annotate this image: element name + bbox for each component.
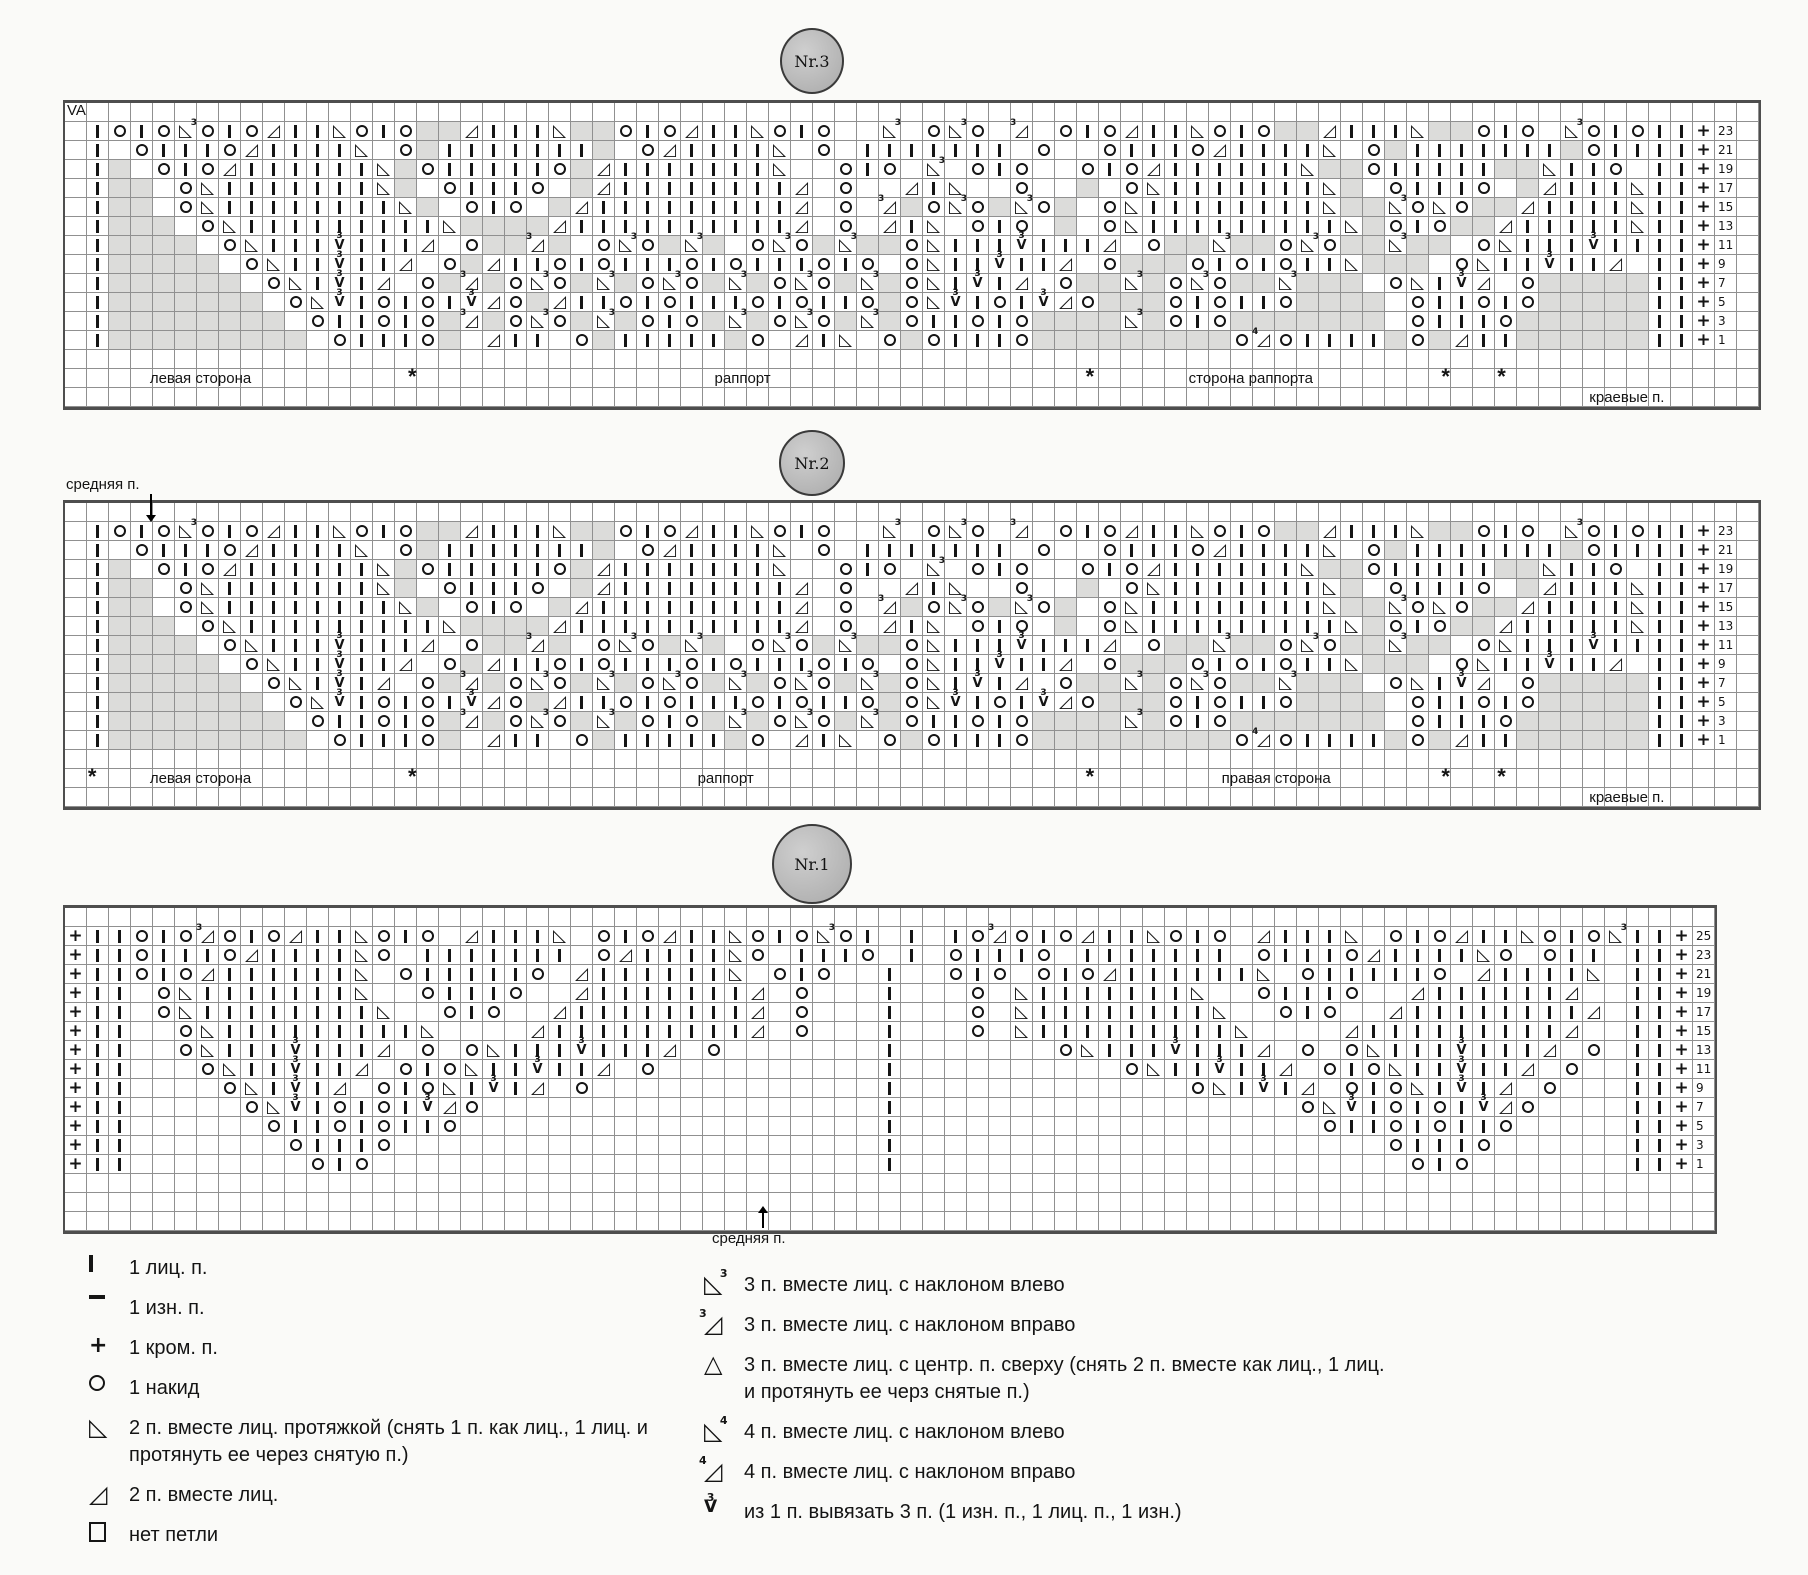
stitch-cell — [109, 141, 131, 160]
stitch-cell — [87, 731, 109, 750]
stitch-cell — [1363, 312, 1385, 331]
yarn-over-icon — [1390, 677, 1402, 689]
stitch-cell — [1165, 1060, 1187, 1079]
stitch-cell — [703, 1003, 725, 1022]
stitch-cell: ◺ — [1341, 255, 1363, 274]
stitch-cell — [87, 179, 109, 198]
stitch-cell — [1539, 1003, 1561, 1022]
stitch-cell — [901, 331, 923, 350]
yarn-over-icon — [378, 296, 390, 308]
stitch-cell — [153, 636, 175, 655]
stitch-cell — [967, 1003, 989, 1022]
stitch-cell: ◺3 — [923, 160, 945, 179]
stitch-cell — [417, 179, 439, 198]
stitch-cell — [1517, 674, 1539, 693]
stitch-cell: ◿ — [1561, 984, 1583, 1003]
grid-cell — [769, 503, 791, 522]
grid-cell — [1077, 103, 1099, 122]
grid-cell — [1187, 750, 1209, 769]
stitch-cell — [769, 946, 791, 965]
knit-stitch-icon — [1240, 220, 1243, 233]
grid-cell — [1253, 788, 1275, 807]
stitch-cell — [1495, 1060, 1517, 1079]
knit-stitch-icon — [162, 930, 165, 943]
grid-cell — [791, 388, 813, 407]
grid-cell — [527, 750, 549, 769]
stitch-cell — [879, 541, 901, 560]
knit-stitch-icon — [1372, 968, 1375, 981]
stitch-cell — [703, 312, 725, 331]
stitch-cell — [439, 927, 461, 946]
yarn-over-icon — [1478, 182, 1490, 194]
knit-stitch-icon — [96, 163, 99, 176]
knit-stitch-icon — [1680, 582, 1683, 595]
grid-cell — [285, 908, 307, 927]
grid-cell — [1561, 788, 1583, 807]
knit-stitch-icon — [338, 544, 341, 557]
stitch-cell — [1583, 160, 1605, 179]
stitch-cell: ◿ — [1363, 946, 1385, 965]
stitch-cell — [219, 984, 241, 1003]
stitch-cell: ◿ — [593, 1060, 615, 1079]
knit-stitch-icon — [1284, 930, 1287, 943]
stitch-cell — [1517, 984, 1539, 1003]
yarn-over-icon — [906, 277, 918, 289]
grid-cell — [461, 388, 483, 407]
grid-cell — [1033, 103, 1055, 122]
stitch-cell: ◺ — [197, 579, 219, 598]
stitch-cell — [1165, 160, 1187, 179]
stitch-cell — [1297, 331, 1319, 350]
knit-stitch-icon — [316, 144, 319, 157]
stitch-cell — [989, 1079, 1011, 1098]
stitch-cell: + — [1693, 541, 1715, 560]
grid-cell — [307, 908, 329, 927]
stitch-cell — [747, 236, 769, 255]
stitch-cell — [615, 1079, 637, 1098]
grid-cell — [1033, 908, 1055, 927]
knit-stitch-icon — [96, 1063, 99, 1076]
stitch-cell — [1077, 312, 1099, 331]
stitch-cell — [197, 541, 219, 560]
k2tog-icon: ◿ — [795, 180, 808, 197]
yarn-over-icon — [818, 677, 830, 689]
grid-cell — [241, 103, 263, 122]
grid-cell — [263, 388, 285, 407]
stitch-cell — [329, 927, 351, 946]
grid-cell — [681, 388, 703, 407]
knit-stitch-icon — [404, 296, 407, 309]
yarn-over-icon — [444, 182, 456, 194]
stitch-cell — [1517, 255, 1539, 274]
stitch-cell — [1253, 198, 1275, 217]
grid-cell — [725, 908, 747, 927]
stitch-cell — [1275, 522, 1297, 541]
knit-stitch-icon — [822, 334, 825, 347]
knit-stitch-icon — [470, 987, 473, 1000]
stitch-cell — [791, 236, 813, 255]
stitch-cell — [1055, 312, 1077, 331]
stitch-cell: + — [1693, 598, 1715, 617]
grid-cell — [373, 908, 395, 927]
stitch-cell: ◺ — [219, 617, 241, 636]
grid-cell — [219, 350, 241, 369]
stitch-cell — [813, 560, 835, 579]
stitch-cell — [1121, 1003, 1143, 1022]
stitch-cell — [505, 674, 527, 693]
knit-stitch-icon — [580, 544, 583, 557]
stitch-cell — [703, 1041, 725, 1060]
yarn-over-icon — [620, 696, 632, 708]
stitch-cell — [769, 312, 791, 331]
stitch-cell — [1451, 236, 1473, 255]
stitch-cell — [197, 731, 219, 750]
yarn-over-icon — [642, 277, 654, 289]
yarn-over-icon — [1368, 544, 1380, 556]
ssk-icon: ◺ — [1499, 637, 1512, 654]
stitch-cell: + — [1671, 1022, 1693, 1041]
stitch-cell: ◺3 — [813, 927, 835, 946]
yarn-over-icon — [796, 696, 808, 708]
yarn-over-icon — [510, 601, 522, 613]
stitch-cell — [703, 331, 725, 350]
grid-cell — [571, 503, 593, 522]
stitch-cell — [153, 1060, 175, 1079]
knit-stitch-icon — [1020, 258, 1023, 271]
grid-cell — [1671, 388, 1693, 407]
knit-stitch-icon — [514, 1082, 517, 1095]
grid-cell — [153, 908, 175, 927]
stitch-cell — [1143, 331, 1165, 350]
stitch-cell — [1451, 617, 1473, 636]
stitch-cell — [417, 655, 439, 674]
knit-stitch-icon — [1438, 144, 1441, 157]
stitch-cell — [263, 946, 285, 965]
knit-stitch-icon — [690, 620, 693, 633]
stitch-cell: + — [1693, 636, 1715, 655]
yarn-over-icon — [1082, 163, 1094, 175]
stitch-cell — [241, 293, 263, 312]
stitch-cell: ◿ — [1077, 927, 1099, 946]
knit-stitch-icon — [1306, 182, 1309, 195]
stitch-cell — [461, 179, 483, 198]
knit-stitch-icon — [954, 315, 957, 328]
stitch-cell — [1077, 331, 1099, 350]
knit-stitch-icon — [1482, 734, 1485, 747]
edge-stitch-icon: + — [1696, 599, 1710, 616]
yarn-over-icon — [422, 563, 434, 575]
yarn-over-icon — [1280, 258, 1292, 270]
k3tog-left-icon: ◺3 — [861, 675, 874, 692]
stitch-cell — [1671, 712, 1693, 731]
k2tog-icon: ◿ — [1323, 123, 1336, 140]
knit-stitch-icon — [998, 544, 1001, 557]
grid-cell — [1627, 103, 1649, 122]
stitch-cell: + — [1693, 179, 1715, 198]
stitch-cell — [1583, 522, 1605, 541]
knit-stitch-icon — [448, 296, 451, 309]
stitch-cell: ◿ — [1583, 1003, 1605, 1022]
stitch-cell — [197, 331, 219, 350]
k2tog-icon: ◿ — [421, 237, 434, 254]
grid-cell — [549, 503, 571, 522]
knit-stitch-icon — [1482, 544, 1485, 557]
grid-cell — [87, 788, 109, 807]
knit-stitch-icon — [1218, 949, 1221, 962]
stitch-cell — [1275, 598, 1297, 617]
yarn-over-icon — [1104, 601, 1116, 613]
knit-stitch-icon — [1482, 163, 1485, 176]
knit-stitch-icon — [1438, 696, 1441, 709]
stitch-cell — [1649, 579, 1671, 598]
stitch-cell: ◿ — [791, 179, 813, 198]
grid-cell — [813, 503, 835, 522]
stitch-cell: ◿ — [1055, 655, 1077, 674]
ssk-icon: ◺ — [1499, 237, 1512, 254]
k2tog-icon: ◿ — [597, 1061, 610, 1078]
edge-stitch-icon: + — [1674, 1023, 1688, 1040]
stitch-cell — [1583, 1041, 1605, 1060]
stitch-cell — [263, 293, 285, 312]
stitch-cell — [307, 331, 329, 350]
stitch-cell: ◺3 — [1209, 236, 1231, 255]
grid-cell — [527, 369, 549, 388]
ssk-icon: ◺ — [355, 947, 368, 964]
knit-stitch-icon — [1460, 949, 1463, 962]
stitch-cell — [439, 946, 461, 965]
grid-cell — [109, 788, 131, 807]
k3tog-left-icon: ◺3 — [1301, 237, 1314, 254]
stitch-cell — [263, 1060, 285, 1079]
row-number: 15 — [1693, 1022, 1715, 1041]
stitch-cell — [373, 693, 395, 712]
grid-cell — [967, 103, 989, 122]
yarn-over-icon — [1324, 239, 1336, 251]
stitch-cell — [153, 731, 175, 750]
grid-cell — [1341, 750, 1363, 769]
knit-stitch-icon — [1196, 696, 1199, 709]
stitch-cell — [1121, 965, 1143, 984]
stitch-cell: ◺ — [923, 655, 945, 674]
stitch-cell — [131, 522, 153, 541]
knit-stitch-icon — [1438, 563, 1441, 576]
stitch-cell — [637, 198, 659, 217]
stitch-cell — [1165, 141, 1187, 160]
stitch-cell — [593, 522, 615, 541]
grid-cell — [1715, 369, 1737, 388]
knit-stitch-icon — [426, 620, 429, 633]
grid-cell — [351, 350, 373, 369]
knit-stitch-icon — [382, 1025, 385, 1038]
stitch-cell — [659, 331, 681, 350]
knit-stitch-icon — [1416, 163, 1419, 176]
stitch-cell — [395, 312, 417, 331]
stitch-cell: ◿ — [791, 598, 813, 617]
stitch-cell: + — [65, 1003, 87, 1022]
stitch-cell — [945, 946, 967, 965]
stitch-cell — [329, 160, 351, 179]
stitch-cell — [439, 236, 461, 255]
k2tog-icon: ◿ — [1367, 947, 1380, 964]
stitch-cell — [549, 141, 571, 160]
grid-cell — [747, 350, 769, 369]
stitch-cell — [1473, 560, 1495, 579]
k2tog-icon: ◿ — [267, 523, 280, 540]
grid-cell — [351, 369, 373, 388]
stitch-cell: ◿ — [901, 179, 923, 198]
knit-stitch-icon — [646, 601, 649, 614]
stitch-cell — [329, 560, 351, 579]
grid-cell — [813, 788, 835, 807]
grid-cell — [989, 769, 1011, 788]
stitch-cell — [1539, 541, 1561, 560]
ssk-icon: ◺ — [333, 123, 346, 140]
stitch-cell: ◿ — [1473, 965, 1495, 984]
knit-stitch-icon — [580, 220, 583, 233]
grid-cell — [1737, 712, 1759, 731]
grid-cell — [813, 388, 835, 407]
grid-cell — [923, 788, 945, 807]
stitch-cell — [1451, 293, 1473, 312]
stitch-cell — [109, 274, 131, 293]
stitch-cell — [87, 217, 109, 236]
ssk-icon: ◺ — [179, 985, 192, 1002]
stitch-cell — [1583, 927, 1605, 946]
knit-stitch-icon — [1262, 563, 1265, 576]
knit-stitch-icon — [1592, 949, 1595, 962]
knit-stitch-icon — [602, 1025, 605, 1038]
grid-cell — [175, 350, 197, 369]
grid-cell — [1121, 103, 1143, 122]
ssk-icon: ◺ — [267, 656, 280, 673]
stitch-cell — [1165, 255, 1187, 274]
grid-cell — [1429, 503, 1451, 522]
grid-cell — [571, 388, 593, 407]
stitch-cell — [263, 141, 285, 160]
stitch-cell — [769, 1022, 791, 1041]
make3-icon: V3 — [1038, 296, 1048, 309]
knit-stitch-icon — [272, 968, 275, 981]
stitch-cell — [1165, 560, 1187, 579]
stitch-cell — [1517, 179, 1539, 198]
stitch-cell — [571, 636, 593, 655]
knit-stitch-icon — [1262, 658, 1265, 671]
stitch-cell — [1407, 1060, 1429, 1079]
grid-cell — [1473, 369, 1495, 388]
stitch-cell — [1077, 674, 1099, 693]
stitch-cell — [571, 255, 593, 274]
stitch-cell: ◺ — [175, 984, 197, 1003]
stitch-cell: ◿ — [747, 1003, 769, 1022]
grid-cell — [1407, 750, 1429, 769]
stitch-cell — [1627, 655, 1649, 674]
stitch-cell — [131, 1003, 153, 1022]
stitch-cell — [1539, 693, 1561, 712]
knit-stitch-icon — [1592, 258, 1595, 271]
knit-stitch-icon — [338, 201, 341, 214]
knit-stitch-icon — [272, 601, 275, 614]
knit-stitch-icon — [1350, 1063, 1353, 1076]
stitch-cell — [1077, 965, 1099, 984]
grid-cell — [241, 503, 263, 522]
stitch-cell — [813, 1003, 835, 1022]
stitch-cell — [1055, 1079, 1077, 1098]
stitch-cell — [219, 946, 241, 965]
ssk-icon: ◺ — [1521, 928, 1534, 945]
yarn-over-icon — [796, 296, 808, 308]
stitch-cell — [351, 331, 373, 350]
edge-stitch-icon: + — [1696, 732, 1710, 749]
stitch-cell — [1363, 984, 1385, 1003]
stitch-cell — [813, 731, 835, 750]
grid-cell — [505, 350, 527, 369]
stitch-cell — [901, 927, 923, 946]
grid-row — [65, 388, 1759, 407]
knit-stitch-icon — [624, 1044, 627, 1057]
chart-grid-nr1: +3◿◿◺◿◺◿◺◺33◿◿◺◿◺◿◺◺3+25+◿◺◿◺◿◺+23+◿◺◿◺◿… — [63, 905, 1717, 1234]
yarn-over-icon — [1258, 525, 1270, 537]
stitch-cell: ◺3 — [1561, 122, 1583, 141]
stitch-cell — [1319, 236, 1341, 255]
knit-stitch-icon — [778, 658, 781, 671]
stitch-cell — [373, 984, 395, 1003]
grid-cell — [1407, 769, 1429, 788]
grid-cell — [1275, 788, 1297, 807]
stitch-cell — [505, 731, 527, 750]
stitch-cell — [1187, 541, 1209, 560]
knit-stitch-icon — [1570, 968, 1573, 981]
knit-stitch-icon — [712, 930, 715, 943]
stitch-cell — [1055, 712, 1077, 731]
knit-stitch-icon — [316, 220, 319, 233]
knit-stitch-icon — [1174, 125, 1177, 138]
grid-cell — [923, 769, 945, 788]
edge-stitch-icon: + — [1674, 1004, 1688, 1021]
knit-stitch-icon — [690, 144, 693, 157]
stitch-cell — [1429, 674, 1451, 693]
grid-cell — [1363, 769, 1385, 788]
grid-cell — [967, 369, 989, 388]
stitch-cell — [505, 217, 527, 236]
stitch-cell — [1165, 331, 1187, 350]
knit-stitch-icon — [272, 163, 275, 176]
stitch-cell — [197, 160, 219, 179]
k2tog-icon: ◿ — [487, 294, 500, 311]
stitch-cell — [197, 674, 219, 693]
knit-stitch-icon — [96, 544, 99, 557]
grid-cell — [945, 750, 967, 769]
grid-cell — [1055, 503, 1077, 522]
stitch-cell — [1187, 693, 1209, 712]
knit-stitch-icon — [712, 125, 715, 138]
knit-stitch-icon — [294, 1006, 297, 1019]
stitch-cell — [1275, 984, 1297, 1003]
stitch-cell — [637, 141, 659, 160]
stitch-cell — [791, 984, 813, 1003]
knit-stitch-icon — [1174, 1063, 1177, 1076]
grid-cell — [835, 503, 857, 522]
stitch-cell — [549, 674, 571, 693]
yarn-over-icon — [972, 1025, 984, 1037]
stitch-cell: ◺ — [1319, 141, 1341, 160]
yarn-over-icon — [466, 1044, 478, 1056]
ssk-icon: ◺ — [1301, 561, 1314, 578]
knit-stitch-icon — [118, 1063, 121, 1076]
stitch-cell — [1209, 198, 1231, 217]
stitch-cell — [1275, 693, 1297, 712]
knit-stitch-icon — [1262, 258, 1265, 271]
k3tog-left-icon: ◺3 — [817, 928, 830, 945]
